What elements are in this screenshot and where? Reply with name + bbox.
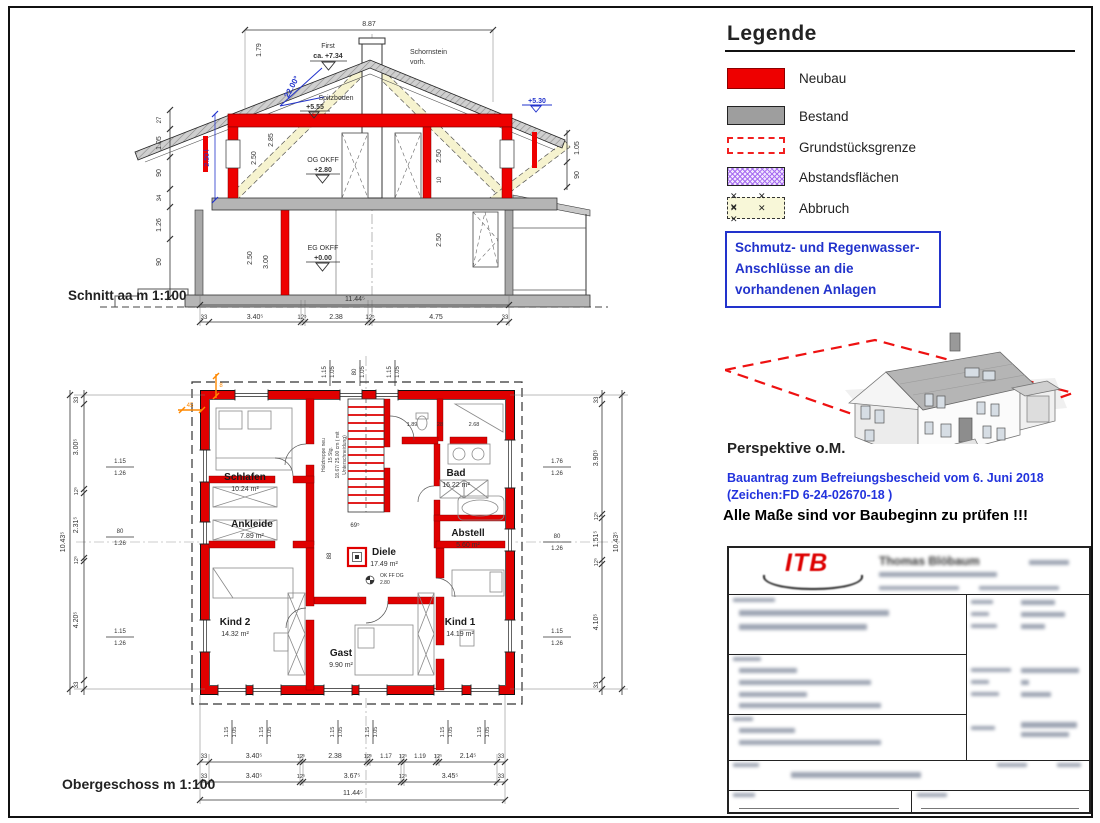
- room-name: Schlafen: [224, 472, 266, 483]
- dim-label: 2.50: [247, 251, 254, 265]
- dim-label: 1.26: [114, 541, 126, 547]
- dim-label: 1.05: [338, 727, 344, 738]
- blurred-text-line: [879, 572, 997, 577]
- room-name: Kind 2: [220, 617, 251, 628]
- dim-label: 1.76: [551, 459, 563, 465]
- dim-label: 1.15: [365, 727, 371, 738]
- legend-item-label: Abbruch: [799, 201, 849, 216]
- room-area: 10.24 m²: [231, 486, 259, 493]
- window-opening: [253, 685, 281, 696]
- dim-label: 12⁵: [297, 773, 305, 780]
- dim-label: 90: [156, 169, 163, 177]
- dim-label: First: [321, 43, 335, 50]
- dim-label: 1.15: [440, 727, 446, 738]
- dim-label: 2.68: [469, 422, 480, 428]
- room-area: 16.22 m²: [442, 482, 470, 489]
- window-opening: [505, 620, 516, 652]
- floorplan-title: Obergeschoss m 1:100: [62, 776, 215, 792]
- room-area: 14.19 m²: [446, 631, 474, 638]
- abstand-swatch: [727, 167, 785, 186]
- room-area: 9.90 m²: [329, 662, 353, 669]
- legend-item-grundstuecksgrenze: Grundstücksgrenze: [727, 137, 1067, 163]
- dim-label: 1.79: [256, 43, 263, 57]
- neubau-swatch: [727, 68, 785, 89]
- dim-label: 1.26: [114, 471, 126, 477]
- note-line: Schmutz- und Regenwasser-: [735, 238, 931, 259]
- dim-label: 2.80: [380, 580, 390, 586]
- room-name: Diele: [372, 547, 396, 558]
- dim-label: 3.00: [263, 255, 270, 269]
- dim-label: 1.05: [360, 366, 366, 378]
- legend-item-label: Grundstücksgrenze: [799, 140, 916, 155]
- dim-label: 1.26: [551, 546, 563, 552]
- dim-label: OG OKFF: [307, 157, 339, 164]
- room-name: Kind 1: [445, 617, 476, 628]
- dim-label: +2.80: [314, 167, 332, 174]
- dim-label: 12⁵: [364, 753, 372, 760]
- dim-label: 1.15: [322, 366, 328, 378]
- dim-label: 1.15: [477, 727, 483, 738]
- dim-label: 3.40⁵: [246, 753, 263, 760]
- dim-label: 10: [437, 176, 443, 183]
- dim-label: 1.19: [414, 754, 426, 760]
- dim-label: 2.50 l: [204, 149, 211, 167]
- room-name: Gast: [330, 648, 353, 659]
- dim-label: EG OKFF: [308, 245, 339, 252]
- room-area: 17.49 m²: [370, 561, 398, 568]
- section-title: Schnitt aa m 1:100: [68, 288, 187, 303]
- dim-label: 12⁵: [593, 512, 600, 520]
- dim-label: 33: [201, 754, 208, 760]
- dim-label: 1.05: [156, 136, 163, 150]
- dim-label: 12⁵: [399, 753, 407, 760]
- house-3d: [849, 333, 1060, 444]
- dim-label: 33: [502, 315, 509, 321]
- dim-label: 2.50: [436, 233, 443, 247]
- window-opening: [324, 685, 352, 696]
- approval-note: Bauantrag zum Befreiungsbescheid vom 6. …: [727, 470, 1044, 504]
- dim-label: 12⁵: [434, 753, 442, 760]
- dim-label: 15 Stg.: [328, 447, 334, 463]
- dim-label: 1.05: [330, 366, 336, 378]
- dim-label: 12⁵: [73, 487, 80, 495]
- dim-label: 1.15: [387, 366, 393, 378]
- room-area: 7.89 m²: [240, 533, 264, 540]
- legend-item-neubau: Neubau: [727, 68, 1067, 94]
- dim-label: 1.26: [156, 218, 163, 232]
- legend-item-label: Neubau: [799, 71, 846, 86]
- dim-label: 4.10⁵: [593, 614, 600, 631]
- dim-label: 88: [327, 552, 333, 559]
- perspective-caption: Perspektive o.M.: [727, 440, 845, 457]
- approval-line: (Zeichen:FD 6-24-02670-18 ): [727, 487, 1044, 504]
- bestand-swatch: [727, 106, 785, 125]
- dim-label: 8.87: [362, 21, 376, 28]
- dim-label: Holztreppe neu: [321, 438, 327, 472]
- dim-label: vorh.: [410, 59, 426, 66]
- dim-label: 33: [498, 774, 505, 780]
- window-opening: [200, 620, 211, 652]
- dim-label: 33: [74, 681, 80, 688]
- room-area: 14.32 m²: [221, 631, 249, 638]
- dim-label: Spitzboden: [318, 95, 353, 102]
- note-line: Anschlüsse an die: [735, 259, 931, 280]
- dim-label: 10.43⁵: [60, 532, 67, 553]
- dim-label: 1.05: [485, 727, 491, 738]
- dim-label: 90: [156, 258, 163, 266]
- dim-label: 80: [117, 529, 124, 535]
- company-logo: ITB: [785, 549, 828, 578]
- legend-item-label: Abstandsflächen: [799, 170, 899, 185]
- dim-label: 4.20⁵: [73, 612, 80, 629]
- dim-label: 1.17: [380, 754, 392, 760]
- dim-label: 12⁵: [297, 314, 307, 321]
- dim-label: 3.40⁵: [247, 314, 264, 321]
- window-opening: [359, 685, 387, 696]
- abbruch-swatch: [727, 197, 785, 219]
- dim-label: Schornstein: [410, 49, 447, 56]
- legend-item-label: Bestand: [799, 109, 849, 124]
- window-opening: [505, 440, 516, 488]
- logo-arc: [763, 575, 863, 590]
- dim-label: 34: [157, 194, 163, 201]
- dim-label: 11.44⁵: [345, 296, 365, 303]
- grenze-swatch: [727, 137, 785, 154]
- dim-label: 2.38: [329, 314, 343, 321]
- dim-label: 2.50: [436, 149, 443, 163]
- window-opening: [235, 390, 268, 401]
- dim-label: 3.40⁵: [246, 773, 263, 780]
- legend-item-abbruch: Abbruch: [727, 197, 1067, 223]
- dim-label: 1.05: [373, 727, 379, 738]
- blurred-text-line: [1029, 560, 1069, 565]
- dim-label: 11.44⁵: [343, 790, 363, 797]
- dim-label: 12⁵: [73, 556, 80, 564]
- perspective-image: [725, 330, 1090, 444]
- approval-line: Bauantrag zum Befreiungsbescheid vom 6. …: [727, 470, 1044, 487]
- dim-label: 80: [554, 534, 561, 540]
- warning-note: Alle Maße sind vor Baubeginn zu prüfen !…: [723, 507, 1028, 524]
- dim-label: 33: [594, 396, 600, 403]
- sewage-note-box: Schmutz- und Regenwasser- Anschlüsse an …: [725, 231, 941, 308]
- dim-label: 1.05: [267, 727, 273, 738]
- dim-label: 12⁵: [399, 773, 407, 780]
- dim-label: 1.15: [114, 459, 126, 465]
- dim-label: ca. +7.34: [313, 53, 342, 60]
- dim-label: 80: [352, 368, 358, 375]
- dim-label: 1.05: [448, 727, 454, 738]
- dim-label: 33: [594, 681, 600, 688]
- dim-label: 33: [74, 396, 80, 403]
- room-name: Bad: [447, 468, 466, 479]
- window-opening: [471, 685, 499, 696]
- dim-label: 1.05: [395, 366, 401, 378]
- dim-label: +5.55: [306, 104, 324, 111]
- dim-label: 2.38: [328, 753, 342, 760]
- window-opening: [505, 529, 516, 551]
- room-area: 5.60 m²: [456, 542, 480, 549]
- dim-label: 1.26: [114, 641, 126, 647]
- dim-label: 2.31⁵: [73, 517, 80, 534]
- dim-label: 12⁵: [297, 753, 305, 760]
- dim-label: 3.00⁵: [73, 439, 80, 456]
- room-name: Abstell: [451, 528, 485, 539]
- dim-label: OK FF DG: [380, 573, 404, 579]
- dim-label: 2.14⁵: [460, 753, 477, 760]
- dim-label: 1.15: [224, 727, 230, 738]
- dim-label: +0.00: [314, 255, 332, 262]
- dim-label: 1.15: [330, 727, 336, 738]
- window-opening: [218, 685, 246, 696]
- dim-label: 8: [219, 383, 223, 389]
- section-geometry: [100, 30, 608, 326]
- dim-label: 1.05: [232, 727, 238, 738]
- legend-title: Legende: [727, 22, 817, 46]
- legend-underline: [725, 50, 1075, 52]
- dim-label: 2.85: [268, 133, 275, 147]
- dim-label: +5.30: [528, 98, 546, 105]
- dim-label: 10.43⁵: [613, 532, 620, 553]
- dim-label: 1.05: [574, 141, 581, 155]
- dim-label: 3.45⁵: [442, 773, 459, 780]
- dim-label: 1.15: [551, 629, 563, 635]
- dim-label: 3.67⁵: [344, 773, 361, 780]
- legend-item-abstandsflaechen: Abstandsflächen: [727, 167, 1067, 193]
- dim-label: 33: [498, 754, 505, 760]
- dim-label: 45: [187, 403, 194, 409]
- window-opening: [200, 522, 211, 544]
- dim-label: 27: [157, 116, 163, 123]
- dim-label: 2.50: [251, 151, 258, 165]
- floorplan-drawing: 1.89282.6869⁵88OK FF DG2.80845Holztreppe…: [60, 330, 635, 810]
- dim-label: 1.89: [407, 422, 418, 428]
- engineer-name: Thomas Blöbaum: [879, 554, 980, 568]
- dim-label: 90: [574, 171, 581, 179]
- section-drawing: 8.87Firstca. +7.34Schornsteinvorh.22.00°…: [60, 10, 635, 330]
- dim-label: 1.26: [551, 641, 563, 647]
- blurred-text-line: [979, 586, 1059, 590]
- dim-label: 1.51⁵: [593, 531, 600, 548]
- dim-label: 69⁵: [350, 522, 360, 529]
- dim-label: 1.15: [259, 727, 265, 738]
- dim-label: 12⁵: [365, 314, 375, 321]
- dim-label: 3.90⁵: [593, 450, 600, 467]
- note-line: vorhandenen Anlagen: [735, 280, 931, 301]
- title-block: ITB Thomas Blöbaum: [727, 546, 1091, 814]
- dim-label: 28: [437, 422, 443, 428]
- legend-item-bestand: Bestand: [727, 106, 1067, 132]
- dim-label: 12⁵: [593, 558, 600, 566]
- blurred-text-line: [879, 586, 959, 590]
- dim-label: 4.75: [429, 314, 443, 321]
- dim-label: Unterschneidung): [342, 435, 348, 475]
- dim-label: 1.26: [551, 471, 563, 477]
- dim-label: 18.67/ 25.00 cm ( mit: [335, 431, 341, 479]
- room-name: Ankleide: [231, 519, 273, 530]
- dim-label: 1.15: [114, 629, 126, 635]
- dim-label: 33: [201, 315, 208, 321]
